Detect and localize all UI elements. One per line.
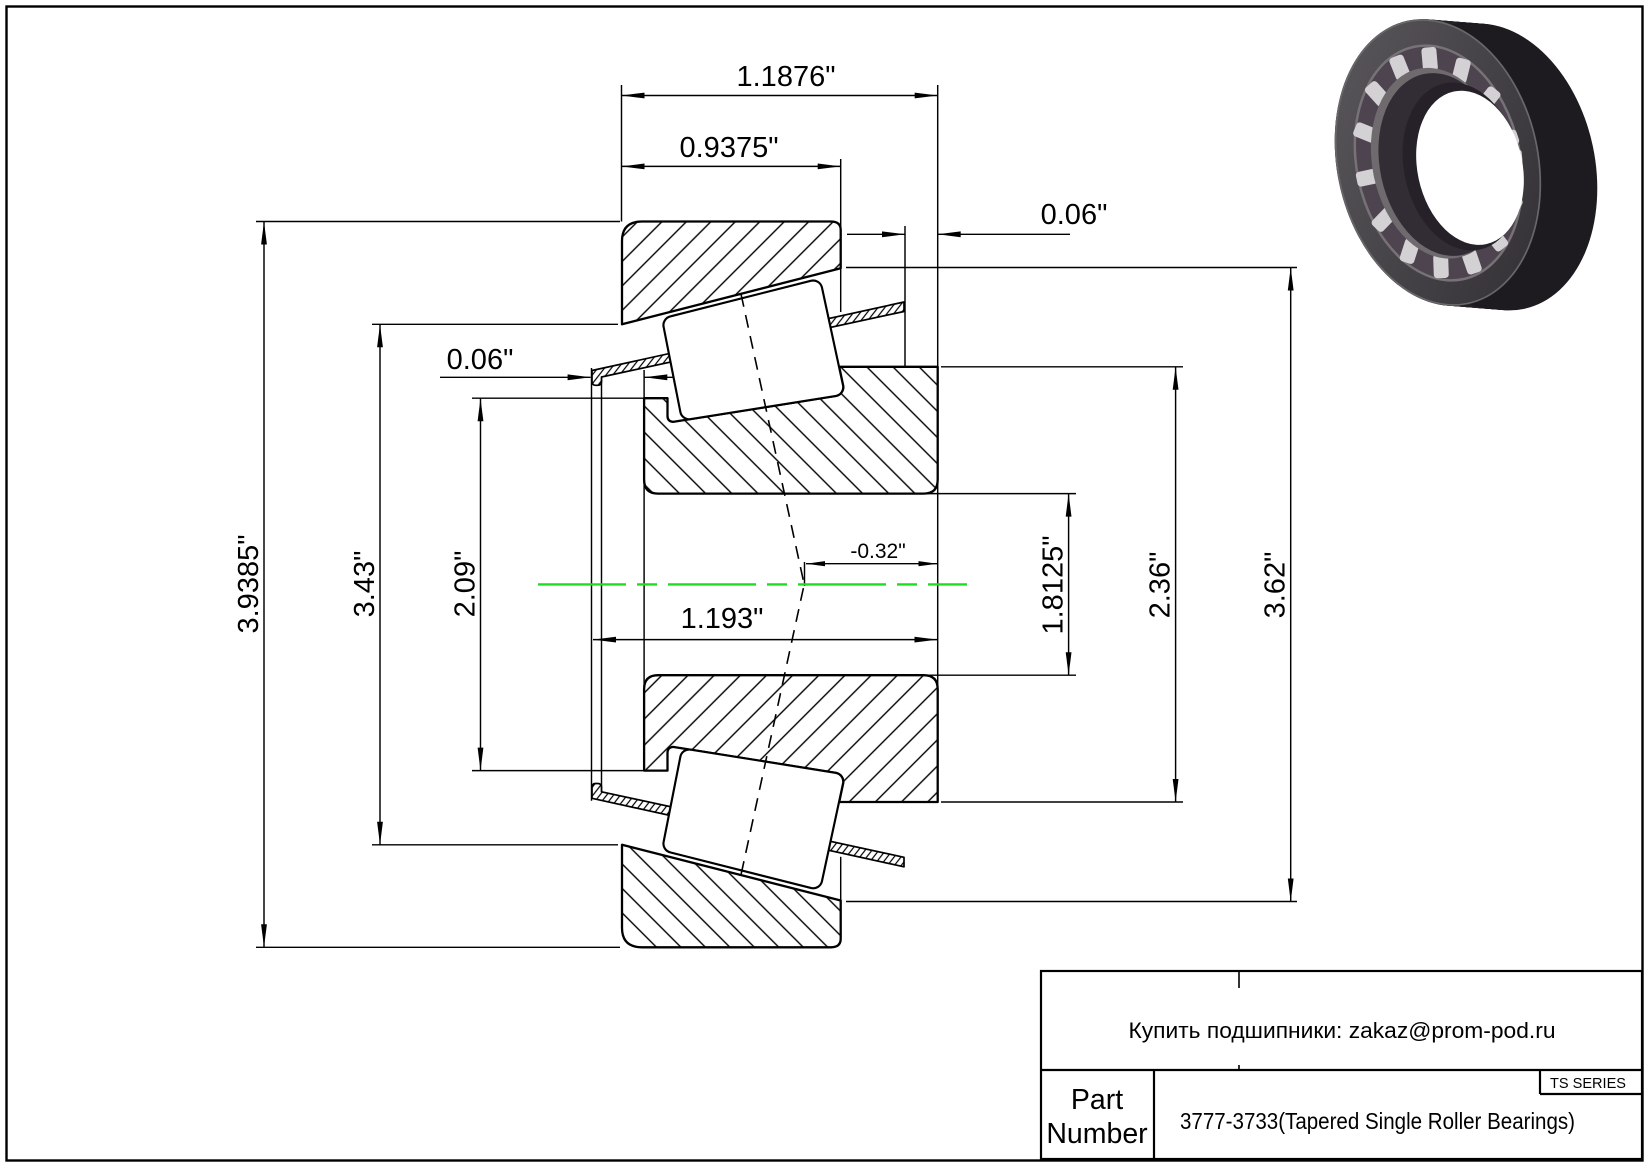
svg-text:2.09": 2.09" <box>450 551 482 618</box>
svg-text:2.36": 2.36" <box>1145 552 1177 619</box>
svg-text:0.06": 0.06" <box>447 344 514 376</box>
svg-text:3.62": 3.62" <box>1260 552 1292 619</box>
svg-text:-0.32": -0.32" <box>850 540 905 563</box>
svg-text:Купить подшипники: zakaz@prom-: Купить подшипники: zakaz@prom-pod.ru <box>1129 1018 1556 1043</box>
svg-text:0.9375": 0.9375" <box>680 132 779 164</box>
svg-text:3777-3733(Tapered Single Rolle: 3777-3733(Tapered Single Roller Bearings… <box>1180 1108 1575 1134</box>
svg-text:3.43": 3.43" <box>349 551 381 618</box>
svg-text:0.06": 0.06" <box>1041 199 1108 231</box>
svg-text:1.1876": 1.1876" <box>737 61 836 93</box>
svg-text:3.9385": 3.9385" <box>233 535 265 634</box>
svg-text:TS SERIES: TS SERIES <box>1550 1075 1626 1092</box>
svg-text:Number: Number <box>1046 1118 1148 1150</box>
svg-text:1.193": 1.193" <box>681 603 764 635</box>
svg-text:Part: Part <box>1071 1084 1123 1116</box>
svg-text:1.8125": 1.8125" <box>1038 536 1070 635</box>
